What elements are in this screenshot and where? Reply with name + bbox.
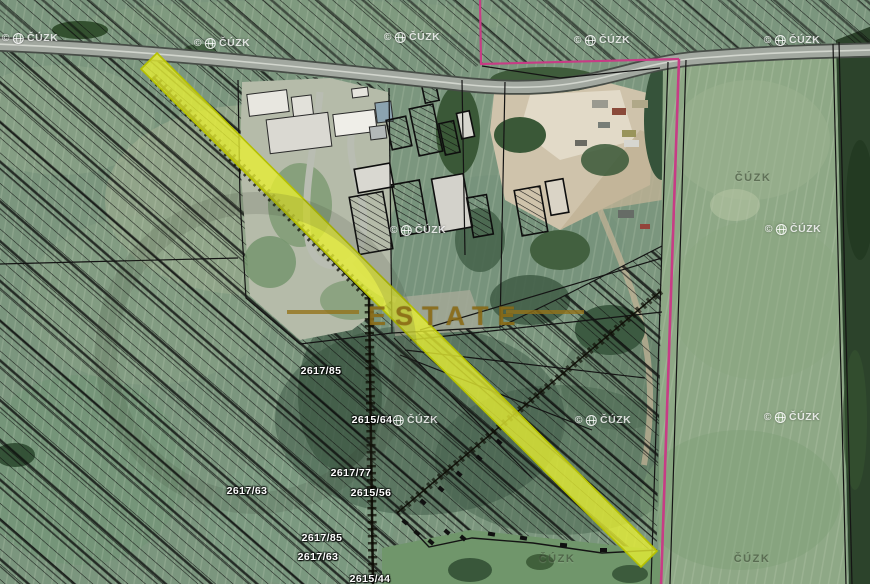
globe-icon bbox=[585, 35, 596, 46]
map-layers bbox=[0, 0, 870, 584]
cuzk-copyright-watermark: ©ČÚZK bbox=[384, 31, 440, 43]
globe-icon bbox=[775, 35, 786, 46]
cuzk-copyright-watermark: ©ČÚZK bbox=[2, 32, 58, 44]
globe-icon bbox=[586, 415, 597, 426]
cuzk-copyright-watermark: ©ČÚZK bbox=[575, 414, 631, 426]
globe-icon bbox=[395, 32, 406, 43]
globe-icon bbox=[775, 412, 786, 423]
globe-icon bbox=[776, 224, 787, 235]
globe-icon bbox=[205, 38, 216, 49]
parcel-label: 2615/64 bbox=[352, 414, 393, 426]
cuzk-copyright-watermark: ©ČÚZK bbox=[765, 223, 821, 235]
cuzk-faint-watermark: ČÚZK bbox=[734, 553, 771, 565]
parcel-label: 2615/44 bbox=[350, 573, 391, 584]
cuzk-faint-watermark: ČÚZK bbox=[735, 172, 772, 184]
globe-icon bbox=[393, 415, 404, 426]
cuzk-copyright-watermark: ©ČÚZK bbox=[194, 37, 250, 49]
globe-icon bbox=[13, 33, 24, 44]
parcel-label: 2615/56 bbox=[351, 487, 392, 499]
parcel-label: 2617/85 bbox=[302, 532, 343, 544]
parcel-label: 2617/77 bbox=[331, 467, 372, 479]
parcel-label: 2617/63 bbox=[298, 551, 339, 563]
cuzk-copyright-watermark: ©ČÚZK bbox=[764, 34, 820, 46]
cuzk-copyright-watermark: ©ČÚZK bbox=[764, 411, 820, 423]
map-canvas[interactable]: ESTATE 2617/852615/642617/772615/562617/… bbox=[0, 0, 870, 584]
cuzk-copyright-watermark: ©ČÚZK bbox=[574, 34, 630, 46]
parcel-label: 2617/85 bbox=[301, 365, 342, 377]
globe-icon bbox=[401, 225, 412, 236]
parcel-label: 2617/63 bbox=[227, 485, 268, 497]
cuzk-copyright-watermark: ©ČÚZK bbox=[390, 224, 446, 236]
cuzk-faint-watermark: ČÚZK bbox=[539, 553, 576, 565]
